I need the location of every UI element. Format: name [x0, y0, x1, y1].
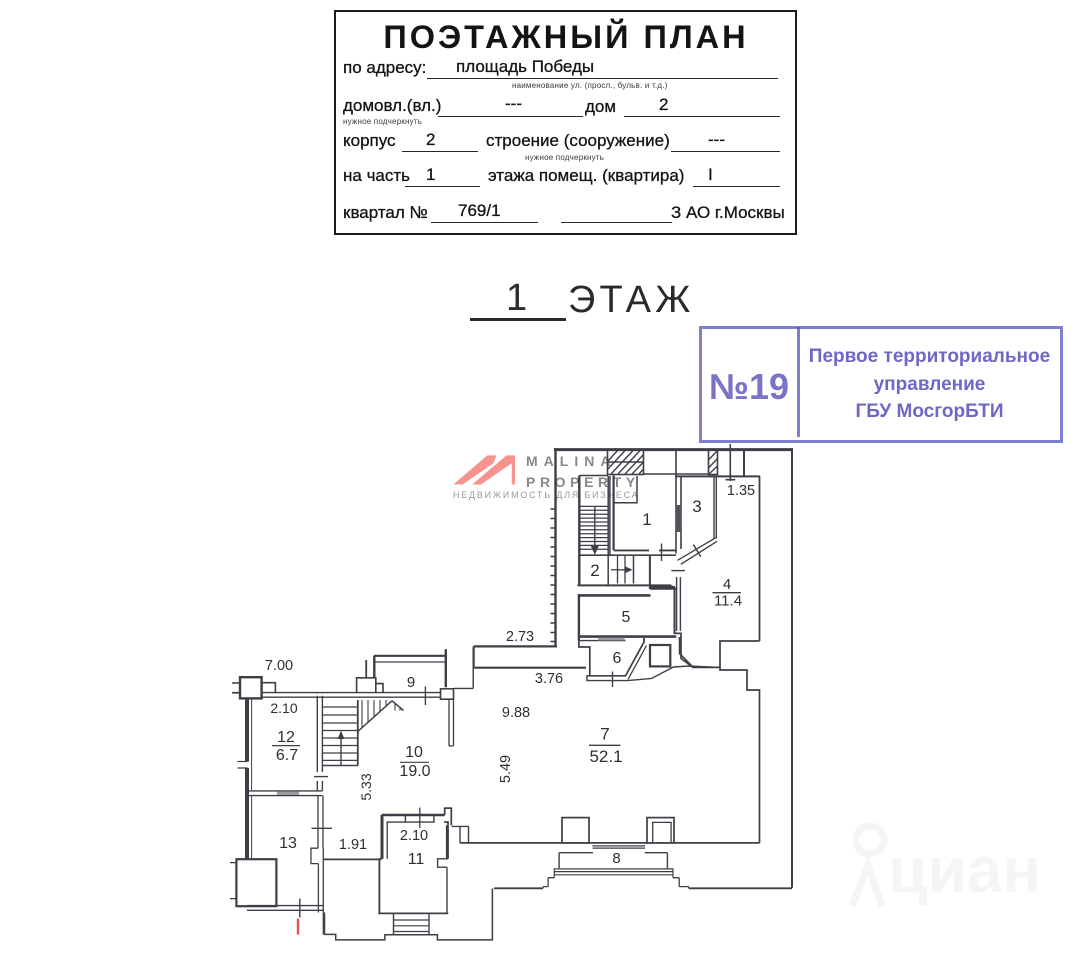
svg-text:7: 7	[600, 725, 609, 744]
svg-text:10: 10	[405, 744, 423, 761]
svg-text:5.33: 5.33	[358, 773, 374, 800]
svg-text:3.76: 3.76	[535, 671, 563, 687]
svg-text:1.91: 1.91	[339, 837, 367, 853]
svg-text:9.88: 9.88	[502, 705, 530, 721]
svg-text:8: 8	[612, 850, 620, 867]
svg-text:5: 5	[622, 609, 631, 626]
svg-text:9: 9	[407, 674, 415, 691]
svg-text:2.73: 2.73	[506, 629, 534, 645]
svg-text:11: 11	[408, 851, 425, 868]
svg-text:5.49: 5.49	[498, 755, 514, 783]
svg-text:12: 12	[277, 729, 295, 746]
svg-text:6.7: 6.7	[276, 747, 298, 764]
svg-text:2: 2	[590, 561, 599, 580]
svg-text:6: 6	[613, 650, 622, 667]
svg-text:52.1: 52.1	[589, 747, 622, 766]
svg-text:2.10: 2.10	[270, 700, 297, 716]
svg-text:13: 13	[279, 835, 297, 852]
svg-text:2.10: 2.10	[400, 828, 428, 844]
svg-text:7.00: 7.00	[265, 658, 293, 674]
svg-text:1.35: 1.35	[727, 483, 755, 499]
svg-text:4: 4	[723, 576, 731, 593]
svg-text:19.0: 19.0	[399, 763, 430, 780]
svg-text:1: 1	[642, 510, 651, 529]
svg-text:3: 3	[692, 497, 701, 516]
svg-text:11.4: 11.4	[714, 593, 742, 610]
